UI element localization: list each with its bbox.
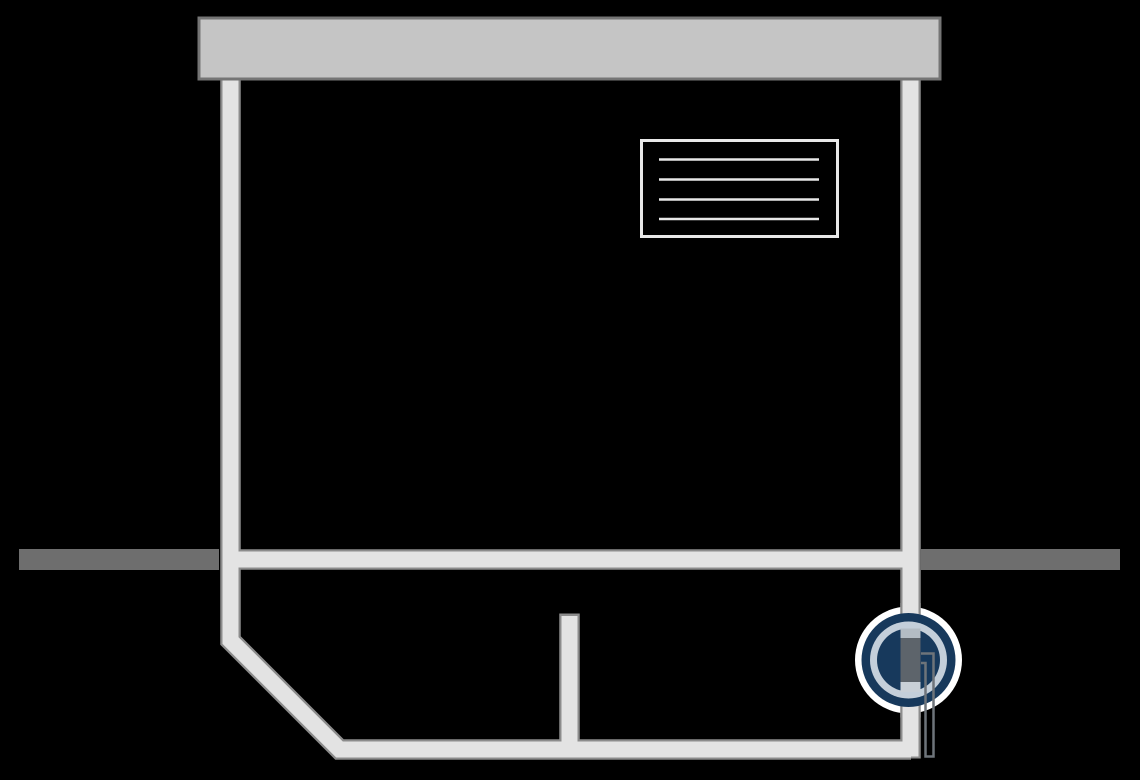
backwater-valve-body bbox=[901, 638, 921, 682]
window-label-box-frame bbox=[642, 141, 838, 237]
diagram-canvas bbox=[0, 0, 1140, 780]
pipe-segment-below-valve bbox=[901, 682, 921, 692]
window-label-box bbox=[642, 141, 838, 237]
roof-slab bbox=[199, 18, 940, 79]
ground-line-left bbox=[19, 549, 219, 570]
house-cross-section-diagram bbox=[0, 0, 1140, 780]
ground-line-right bbox=[921, 549, 1120, 570]
